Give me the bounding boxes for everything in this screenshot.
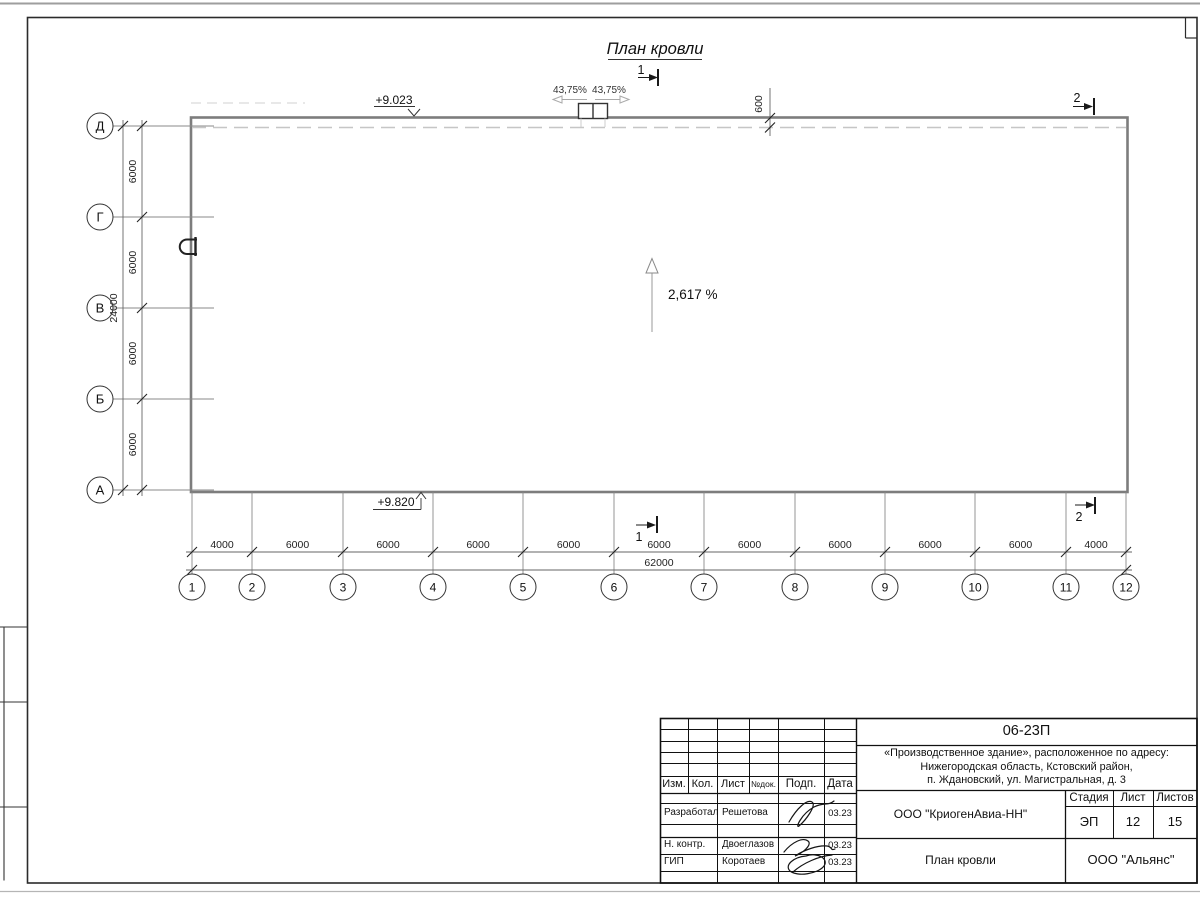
ladder-symbol	[180, 237, 197, 256]
slope-value-label: 2,617 %	[668, 287, 718, 302]
elevation-ridge: +9.023	[374, 93, 420, 116]
row-axis-label: Б	[96, 392, 105, 407]
object-line-3: п. Ждановский, ул. Магистральная, д. 3	[927, 774, 1126, 787]
col-header-ndok: №док.	[749, 776, 778, 793]
col-axis-label: 6	[611, 581, 618, 595]
row-name: Двоеглазов	[719, 837, 780, 854]
row-dim-text: 6000	[127, 251, 139, 275]
col-header-izm: Изм.	[660, 776, 688, 793]
parapet-dim-text: 600	[753, 95, 765, 113]
row-role: Н. контр.	[661, 837, 719, 854]
col-axis-label: 10	[968, 581, 982, 595]
col-axis-label: 3	[340, 581, 347, 595]
doc-number: 06-23П	[856, 718, 1197, 745]
parapet-slope-arrows	[553, 96, 629, 103]
drawing-sheet: План кровли 43,75% 43,75% 600 +9.023 +9.…	[0, 0, 1200, 900]
row-date: 03.23	[824, 837, 856, 854]
elevation-ridge-text: +9.023	[375, 93, 412, 107]
sheet-name: План кровли	[856, 838, 1065, 883]
section-1-top-label: 1	[638, 63, 645, 77]
elevation-eave-text: +9.820	[377, 495, 414, 509]
client-name: ООО "КриогенАвиа-НН"	[856, 790, 1065, 838]
col-axis-bubbles	[179, 574, 1139, 600]
col-axis-label: 2	[249, 581, 256, 595]
row-axis-label: Г	[96, 210, 103, 225]
col-dim-text: 4000	[210, 539, 234, 551]
list-value: 12	[1113, 806, 1153, 838]
drawing-title: План кровли	[607, 40, 704, 58]
company-name: ООО "Альянс"	[1065, 838, 1197, 883]
row-axis-label: Д	[96, 119, 105, 134]
row-dim-text: 6000	[127, 160, 139, 184]
col-axis-label: 7	[701, 581, 708, 595]
col-axis-label: 5	[520, 581, 527, 595]
col-dim-text: 6000	[466, 539, 490, 551]
col-header-kol: Кол.	[688, 776, 717, 793]
col-axis-label: 9	[882, 581, 889, 595]
row-date: 03.23	[824, 803, 856, 824]
col-axis-label: 12	[1119, 581, 1133, 595]
row-role: ГИП	[661, 854, 719, 871]
col-dim-text: 6000	[557, 539, 581, 551]
col-axis-label: 4	[430, 581, 437, 595]
section-2-bottom-label: 2	[1076, 510, 1083, 524]
row-name: Решетова	[719, 803, 780, 824]
list-label: Лист	[1113, 790, 1153, 806]
col-axis-label: 1	[189, 581, 196, 595]
col-header-data: Дата	[824, 776, 856, 793]
side-stamp	[0, 627, 28, 881]
stage-label: Стадия	[1065, 790, 1113, 806]
col-total-dim-text: 62000	[644, 557, 673, 569]
row-dim-text: 6000	[127, 433, 139, 457]
col-dim-text: 6000	[376, 539, 400, 551]
row-role: Разработал	[661, 803, 719, 824]
stage-value: ЭП	[1065, 806, 1113, 838]
col-dim-text: 6000	[918, 539, 942, 551]
listov-value: 15	[1153, 806, 1197, 838]
col-dim-text: 6000	[286, 539, 310, 551]
col-axis-label: 8	[792, 581, 799, 595]
col-dim-text: 6000	[828, 539, 852, 551]
section-2-top-label: 2	[1074, 91, 1081, 105]
row-name: Коротаев	[719, 854, 780, 871]
slope-right-label: 43,75%	[592, 85, 626, 96]
col-header-podp: Подп.	[778, 776, 824, 793]
row-dim-text: 6000	[127, 342, 139, 366]
col-dim-text: 6000	[1009, 539, 1033, 551]
col-dim-text: 6000	[738, 539, 762, 551]
row-total-dim-text: 24000	[108, 293, 120, 322]
row-axis-label: В	[96, 301, 105, 316]
building-outline	[191, 118, 1128, 493]
object-line-2: Нижегородская область, Кстовский район,	[920, 761, 1132, 774]
col-header-list: Лист	[717, 776, 749, 793]
project-object: «Производственное здание», расположенное…	[860, 745, 1193, 790]
slope-left-label: 43,75%	[553, 85, 587, 96]
row-date: 03.23	[824, 854, 856, 871]
elevation-eave: +9.820	[373, 493, 426, 510]
object-line-1: «Производственное здание», расположенное…	[884, 747, 1169, 760]
col-axis-label: 11	[1060, 581, 1073, 595]
section-1-bottom-label: 1	[636, 530, 643, 544]
listov-label: Листов	[1153, 790, 1197, 806]
col-dim-text: 4000	[1084, 539, 1108, 551]
row-axis-label: А	[96, 483, 105, 498]
col-dim-text: 6000	[647, 539, 671, 551]
